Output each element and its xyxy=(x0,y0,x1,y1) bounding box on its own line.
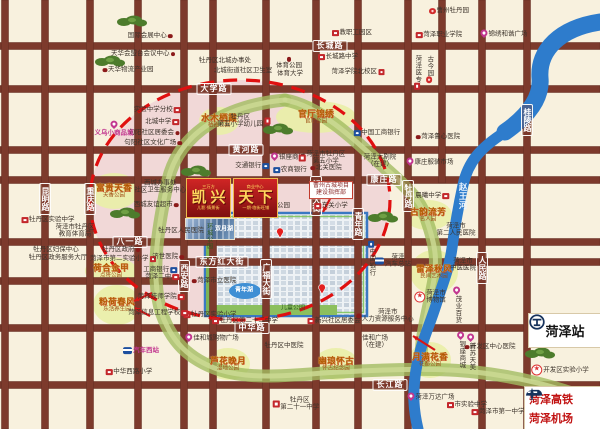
airport-row: 菏泽机场 xyxy=(529,410,600,426)
map-canvas xyxy=(0,0,600,429)
banner-tag-right: 商业中心 xyxy=(247,185,264,189)
banner-sub-left: 儿影·情景街 xyxy=(197,207,220,211)
project-banner: 三万方 凯兴 儿影·情景街 商业中心 天下 一期·临街旺铺 xyxy=(186,178,278,218)
banner-title-right: 天下 xyxy=(234,190,276,207)
rail-row: 菏泽高铁 xyxy=(529,391,600,407)
transport-box: 菏泽高铁 菏泽机场 xyxy=(524,386,600,429)
banner-title-left: 凯兴 xyxy=(187,190,229,207)
banner-left-box: 三万方 凯兴 儿影·情景街 xyxy=(186,178,231,218)
heze-station-box: 菏泽站 xyxy=(528,313,600,348)
location-map: 长城路大学路黄河路康庄路八一路东方红大街中华路长江路昆明路重庆路西安路广福大街解… xyxy=(0,0,600,429)
park-circle-fenhe xyxy=(93,285,141,325)
project-render-thumbnail xyxy=(185,218,235,240)
railway-logo-icon xyxy=(529,314,545,330)
banner-right-box: 商业中心 天下 一期·临街旺铺 xyxy=(233,178,278,218)
banner-tag-left: 三万方 xyxy=(202,185,215,189)
airport-label: 菏泽机场 xyxy=(529,410,573,426)
banner-sub-right: 一期·临街旺铺 xyxy=(242,207,269,211)
airplane-icon xyxy=(525,387,539,401)
heze-station-label: 菏泽站 xyxy=(545,321,584,340)
youth-lake-water xyxy=(229,283,261,299)
